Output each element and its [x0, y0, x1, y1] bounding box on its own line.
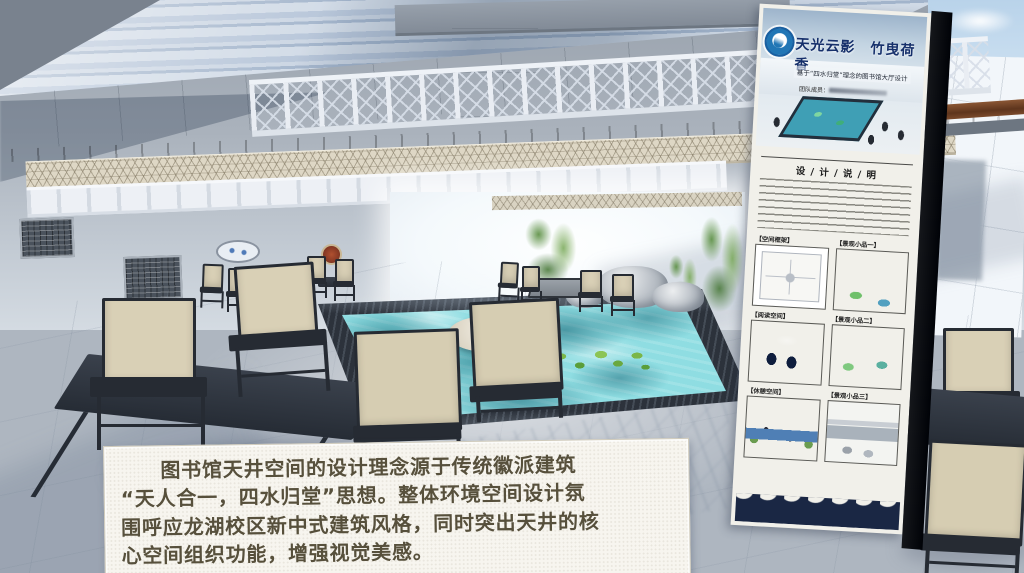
chair — [610, 274, 634, 316]
armchair-back — [465, 298, 567, 423]
chair — [497, 262, 519, 303]
photo-chairs — [756, 104, 922, 154]
render-thumbnail — [743, 395, 820, 461]
chair — [578, 270, 602, 312]
render-thumbnail — [748, 320, 825, 386]
chair — [333, 259, 354, 301]
design-notes-paragraph — [757, 178, 912, 236]
grid-cell: 【休憩空间】 — [743, 385, 820, 462]
armchair-back — [919, 439, 1024, 573]
caption-box: 图书馆天井空间的设计理念源于传统徽派建筑 “天人合一，四水归堂”思想。整体环境空… — [103, 438, 691, 573]
landscape-rock — [652, 282, 704, 312]
render-thumbnail — [824, 400, 901, 466]
oval-medallion-ornament — [216, 240, 260, 263]
cloud — [945, 8, 1015, 34]
grid-cell: 【空间框架】 — [752, 233, 829, 310]
grid-cell: 【景观小品一】 — [832, 237, 909, 314]
banner-image-grid: 【空间框架】 【景观小品一】 【阅读空间】 【景观小品二】 【休憩空间】 【景观… — [743, 233, 909, 466]
grid-cell: 【阅读空间】 — [748, 309, 825, 386]
armchair — [90, 298, 212, 450]
render-thumbnail — [832, 248, 909, 314]
wall-vent-grille — [19, 217, 74, 259]
exhibit-banner-board[interactable]: 天光云影 竹曳荷香 基于“四水归堂”理念的图书馆大厅设计 团队成员： 设 / 计… — [731, 4, 932, 535]
grid-cell: 【景观小品二】 — [828, 313, 905, 390]
floor-plan-thumbnail — [752, 244, 829, 310]
bamboo-plant — [696, 208, 748, 320]
team-names-blur — [829, 88, 887, 96]
armchair — [224, 261, 335, 398]
banner-wave-footer — [735, 493, 900, 530]
scene-viewport: 天光云影 竹曳荷香 基于“四水归堂”理念的图书馆大厅设计 团队成员： 设 / 计… — [0, 0, 1024, 573]
render-thumbnail — [828, 324, 905, 390]
grid-cell: 【景观小品三】 — [824, 389, 901, 466]
